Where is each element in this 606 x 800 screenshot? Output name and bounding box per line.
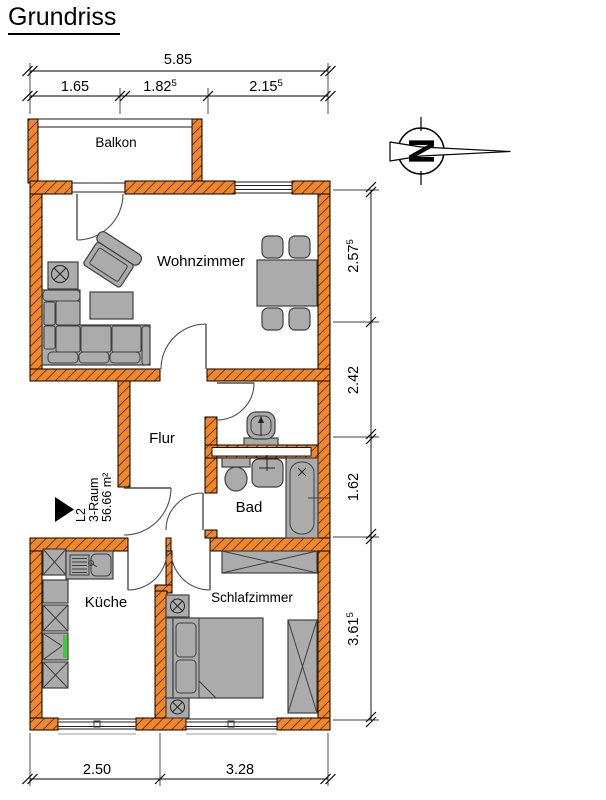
nightstand <box>166 595 189 617</box>
label-bathroom: Bad <box>236 499 263 516</box>
window-kitchen <box>58 719 136 734</box>
wall-segment <box>277 718 330 730</box>
dining-chair <box>262 236 283 258</box>
wardrobe-top <box>222 551 317 573</box>
coffee-table <box>90 292 133 319</box>
dining-chair <box>262 308 283 330</box>
stove-cabinet <box>43 605 68 631</box>
wall-segment <box>136 718 186 730</box>
wall-segment <box>192 119 202 183</box>
dim-top-part: 1.825 <box>143 78 177 95</box>
label-hallway: Flur <box>149 430 175 447</box>
living-room-door <box>161 324 206 369</box>
washbasin-icon <box>252 455 283 487</box>
wall-segment <box>166 538 171 551</box>
living-room-furniture <box>42 230 317 365</box>
north-letter: N <box>401 138 442 164</box>
dim-bottom-part: 2.50 <box>83 762 111 778</box>
dining-set <box>257 236 317 330</box>
apartment-label: L2 3-Raum 56.66 m² <box>74 473 114 522</box>
wardrobe-right <box>288 620 317 713</box>
wall-segment <box>30 369 160 381</box>
north-arrow: N <box>390 117 510 185</box>
label-balcony: Balkon <box>95 135 136 150</box>
dim-top-part: 1.65 <box>61 79 89 95</box>
floorplan-drawing: N 5.85 1.65 1.825 2.155 2.575 2.42 1.62 … <box>0 0 606 800</box>
dim-right-part: 2.42 <box>346 366 362 394</box>
dim-bottom-part: 3.28 <box>226 762 254 778</box>
dim-right-part: 3.615 <box>345 612 362 646</box>
apartment-type: 3-Raum <box>87 478 101 522</box>
wall-segment <box>318 194 330 730</box>
wall-segment <box>30 194 42 369</box>
dim-right-part: 1.62 <box>346 473 362 501</box>
wall-segment <box>118 381 130 487</box>
kitchen-fixtures <box>43 549 113 688</box>
dining-chair <box>289 236 310 258</box>
corner-cabinet <box>43 549 66 575</box>
window-bedroom <box>186 719 277 734</box>
bedroom-door <box>171 551 210 590</box>
double-bed <box>166 618 263 698</box>
entrance-arrow-icon <box>55 497 74 522</box>
kitchen-door <box>128 551 167 590</box>
wall-segment <box>207 369 330 381</box>
dining-table <box>257 260 317 306</box>
wall-segment <box>205 530 217 538</box>
label-kitchen: Küche <box>85 594 128 611</box>
toilet-icon <box>244 412 278 445</box>
bathroom-fixtures <box>222 455 330 538</box>
dim-top-part: 2.155 <box>249 78 283 95</box>
fridge-icon <box>43 633 68 660</box>
bathroom-door <box>166 493 203 530</box>
toilet-icon <box>222 458 250 491</box>
dim-top-total: 5.85 <box>164 52 192 68</box>
wall-segment <box>292 181 330 194</box>
window-living-room <box>235 182 292 193</box>
sink-unit-icon <box>66 551 113 579</box>
wall-segment <box>30 718 58 730</box>
wc-door <box>217 383 254 420</box>
label-living-room: Wohnzimmer <box>157 253 245 270</box>
balcony-structure <box>28 119 202 183</box>
counter <box>43 580 68 603</box>
balcony-door-threshold <box>72 183 125 192</box>
wc-fixtures <box>244 412 278 445</box>
dim-right-part: 2.575 <box>345 239 362 273</box>
apartment-code: L2 <box>74 508 88 522</box>
dining-chair <box>289 308 310 330</box>
balcony-railing <box>38 119 192 127</box>
entrance-door <box>124 488 171 535</box>
wall-segment <box>125 181 235 194</box>
wall-segment <box>28 119 38 183</box>
wall-segment <box>30 181 72 194</box>
wall-segment <box>155 591 167 718</box>
wall-segment <box>210 538 330 551</box>
floorplan-page: Grundriss <box>0 0 606 800</box>
nightstand <box>166 696 189 718</box>
bedroom-furniture <box>166 551 317 718</box>
side-table <box>48 262 78 289</box>
shaft-niche <box>212 448 311 457</box>
cabinet <box>43 662 68 688</box>
wall-segment <box>30 551 42 718</box>
apartment-area: 56.66 m² <box>100 473 114 522</box>
label-bedroom: Schlafzimmer <box>211 590 293 605</box>
